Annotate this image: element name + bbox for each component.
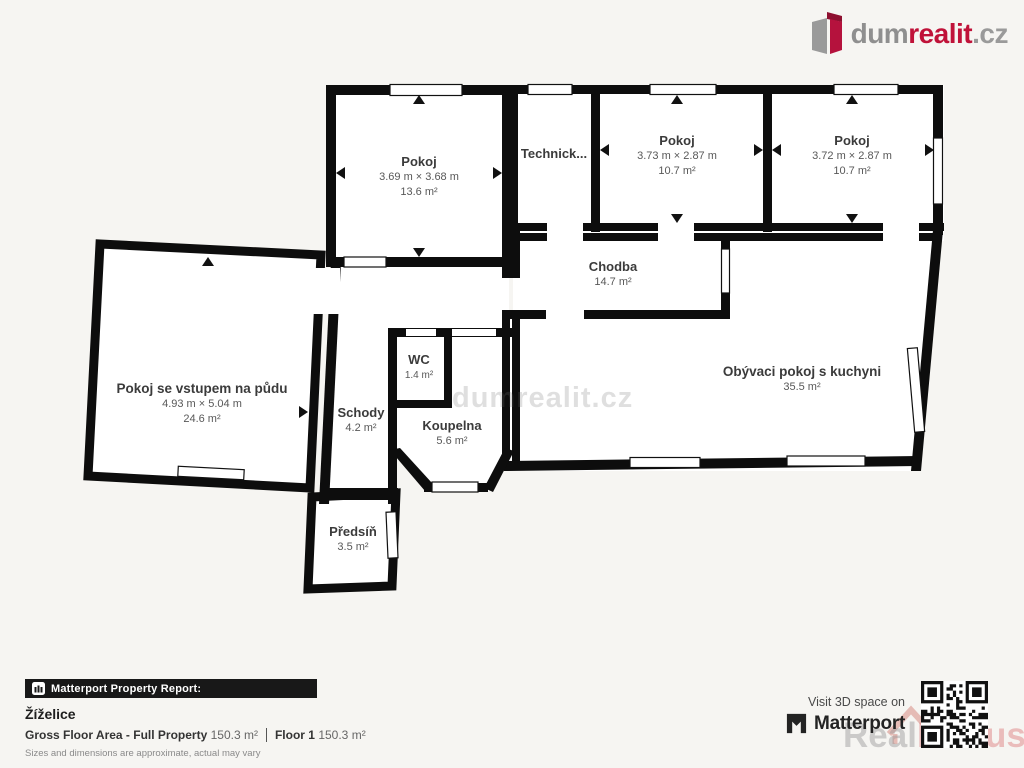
room-name: Koupelna [422,419,481,433]
window [630,458,700,468]
matterport-report-icon [32,682,45,695]
report-stats: Gross Floor Area - Full Property 150.3 m… [25,728,366,742]
room-name: Pokoj [812,134,892,148]
room-area: 10.7 m² [812,165,892,178]
room-label-koupelna: Koupelna 5.6 m² [422,419,481,448]
qr-code [921,681,988,748]
room-name: Pokoj [637,134,717,148]
room-name: Obývaci pokoj s kuchyni [723,365,881,379]
room-dims: 3.72 m × 2.87 m [812,150,892,163]
property-report-block: Matterport Property Report: Žíželice Gro… [25,679,366,759]
door-gap [406,329,436,336]
window [528,85,572,95]
room-label-chodba: Chodba 14.7 m² [589,260,637,289]
window [344,257,386,267]
visit-3d-cta: Visit 3D space on Matterport [785,695,905,735]
wall [326,85,336,267]
room-area: 10.7 m² [637,165,717,178]
room-area: 4.2 m² [338,422,385,435]
disclaimer-text: Sizes and dimensions are approximate, ac… [25,748,366,759]
window [787,456,865,466]
room-label-pokoj-m: Pokoj 3.73 m × 2.87 m 10.7 m² [637,134,717,178]
room-dims: 4.93 m × 5.04 m [116,398,287,411]
window [390,85,462,96]
matterport-logo-icon [785,712,808,735]
wall [591,85,600,232]
room-label-predsin: Předsíň 3.5 m² [329,525,377,554]
room-label-pudni: Pokoj se vstupem na půdu 4.93 m × 5.04 m… [116,382,287,426]
floor-label: Floor 1 [275,728,315,742]
room-name: Chodba [589,260,637,274]
wall [388,400,452,408]
room-pudni-outline [88,244,321,488]
room-dims: 3.69 m × 3.68 m [379,171,459,184]
wall [509,85,518,232]
room-label-schody: Schody 4.2 m² [338,406,385,435]
room-label-technicka: Technick... [521,147,587,161]
room-area: 35.5 m² [723,381,881,394]
room-area: 24.6 m² [116,413,287,426]
report-bar-label: Matterport Property Report: [51,683,201,695]
room-name: Schody [338,406,385,420]
gfa-label: Gross Floor Area - Full Property [25,728,207,742]
room-name: Pokoj [379,155,459,169]
door-gap [883,217,919,244]
room-label-pokoj-tl: Pokoj 3.69 m × 3.68 m 13.6 m² [379,155,459,199]
room-area: 14.7 m² [589,276,637,289]
door-gap [547,218,583,244]
window [722,249,730,293]
window [386,512,398,558]
wall [502,228,520,278]
window [934,138,943,204]
room-name: Technick... [521,147,587,161]
plan-watermark: dumrealit.cz [452,382,633,415]
floorplan-report-page: { "logo": { "prefix": "dum", "accent": "… [0,0,1024,768]
door-gap [546,309,584,320]
room-label-wc: WC 1.4 m² [405,353,433,382]
room-area: 3.5 m² [329,541,377,554]
visit-3d-text: Visit 3D space on [785,695,905,709]
report-header-bar: Matterport Property Report: [25,679,317,698]
window [432,482,478,492]
matterport-brand-row: Matterport [785,712,905,735]
room-area: 5.6 m² [422,435,481,448]
wall [320,488,398,500]
wall [502,310,730,319]
room-label-pokoj-r: Pokoj 3.72 m × 2.87 m 10.7 m² [812,134,892,178]
room-label-obyvaci: Obývaci pokoj s kuchyni 35.5 m² [723,365,881,394]
room-name: Pokoj se vstupem na půdu [116,382,287,396]
matterport-brand-name: Matterport [814,713,905,735]
property-title: Žíželice [25,706,366,722]
window [834,85,898,95]
room-name: Předsíň [329,525,377,539]
room-name: WC [405,353,433,367]
wall [388,328,397,504]
wall [763,85,772,232]
stat-separator [266,728,267,742]
door-gap [452,329,496,336]
window [650,85,716,95]
wall [444,328,452,408]
room-area: 13.6 m² [379,186,459,199]
door-gap [313,268,340,314]
gfa-value: 150.3 m² [211,728,258,742]
room-dims: 3.73 m × 2.87 m [637,150,717,163]
floor-value: 150.3 m² [318,728,365,742]
room-area: 1.4 m² [405,369,433,382]
